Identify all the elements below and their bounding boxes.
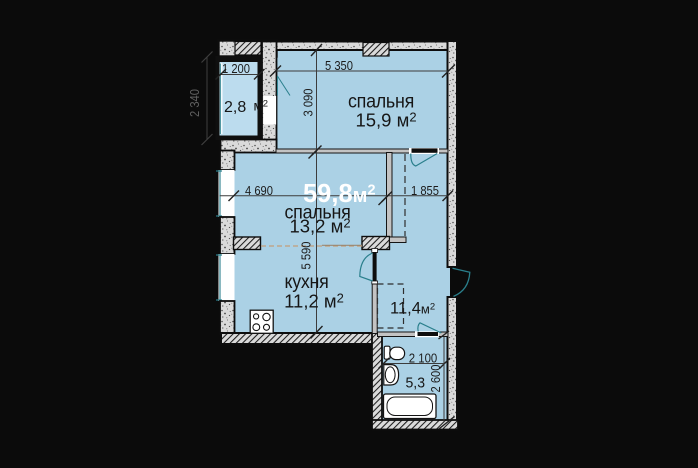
svg-text:4 690: 4 690 [245, 183, 273, 198]
svg-text:5 350: 5 350 [325, 58, 353, 73]
svg-text:11,2 м2: 11,2 м2 [284, 291, 344, 312]
svg-text:3 090: 3 090 [301, 89, 316, 117]
svg-text:13,2 м2: 13,2 м2 [289, 216, 350, 237]
svg-text:2,8: 2,8 [224, 99, 246, 116]
svg-text:2 600: 2 600 [428, 365, 443, 393]
svg-text:5 590: 5 590 [299, 242, 314, 270]
svg-text:5,3: 5,3 [406, 375, 426, 392]
svg-text:кухня: кухня [285, 271, 329, 293]
svg-text:2 340: 2 340 [187, 89, 202, 117]
svg-text:15,9 м2: 15,9 м2 [355, 110, 416, 131]
svg-text:11,4м2: 11,4м2 [390, 299, 435, 317]
svg-text:1 855: 1 855 [411, 183, 439, 198]
svg-text:2 100: 2 100 [409, 350, 438, 365]
svg-text:1 200: 1 200 [222, 61, 250, 76]
